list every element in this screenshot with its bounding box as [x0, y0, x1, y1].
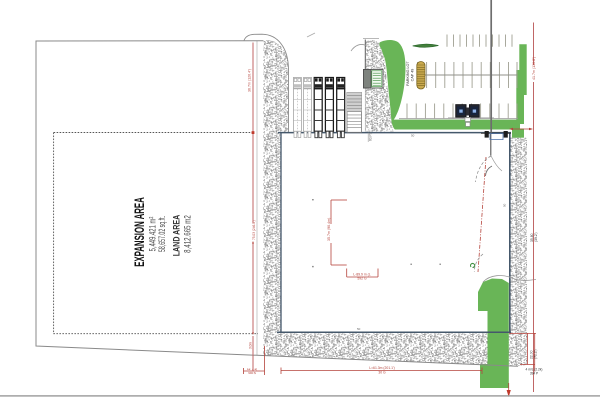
svg-text:LAND AREA: LAND AREA: [171, 215, 182, 257]
svg-text:(39.2'): (39.2'): [534, 232, 538, 242]
svg-text:41.7m (136.8'): 41.7m (136.8'): [532, 57, 536, 80]
svg-text:75.03 (246.1'): 75.03 (246.1'): [252, 220, 256, 240]
svg-text:L=61.3m (201.1'): L=61.3m (201.1'): [369, 366, 395, 370]
svg-text:(72.2'): (72.2'): [534, 349, 538, 359]
svg-text:CAP 49: CAP 49: [411, 69, 415, 82]
svg-text:50: 50: [411, 134, 415, 138]
svg-text:35.7m (90.4m): 35.7m (90.4m): [327, 218, 331, 241]
svg-text:EXPANSION AREA: EXPANSION AREA: [133, 197, 148, 267]
svg-text:592 G: 592 G: [357, 277, 367, 281]
svg-text:394 P: 394 P: [530, 372, 538, 376]
svg-text:60.PS: 60.PS: [369, 132, 373, 141]
svg-text:58,657.02 sq.ft.: 58,657.02 sq.ft.: [156, 216, 167, 252]
svg-text:990 $: 990 $: [248, 371, 256, 375]
svg-text:50: 50: [357, 327, 361, 331]
svg-text:30 G: 30 G: [378, 371, 386, 375]
svg-text:36.7m (120.4'): 36.7m (120.4'): [248, 69, 252, 92]
svg-text:50: 50: [503, 203, 507, 207]
svg-text:8,412.665 m2: 8,412.665 m2: [182, 215, 193, 253]
svg-text:3.0m: 3.0m: [249, 342, 253, 349]
svg-text:PARKING LOT: PARKING LOT: [406, 61, 410, 86]
